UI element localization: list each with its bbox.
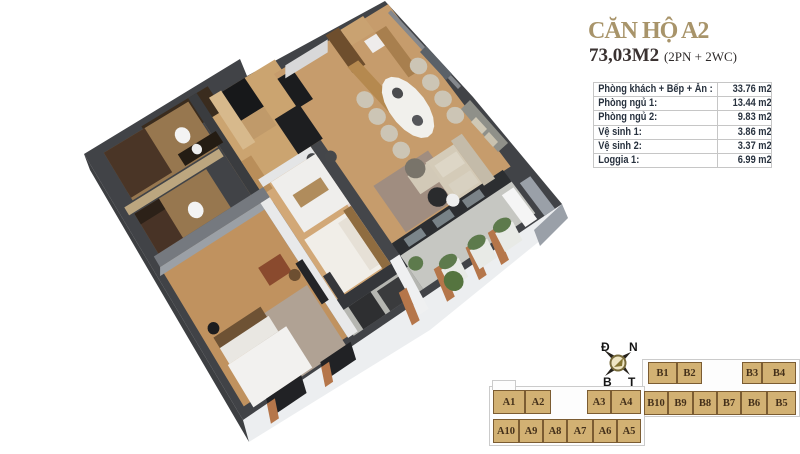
svg-text:Đ: Đ	[601, 340, 610, 354]
svg-text:N: N	[629, 340, 638, 354]
